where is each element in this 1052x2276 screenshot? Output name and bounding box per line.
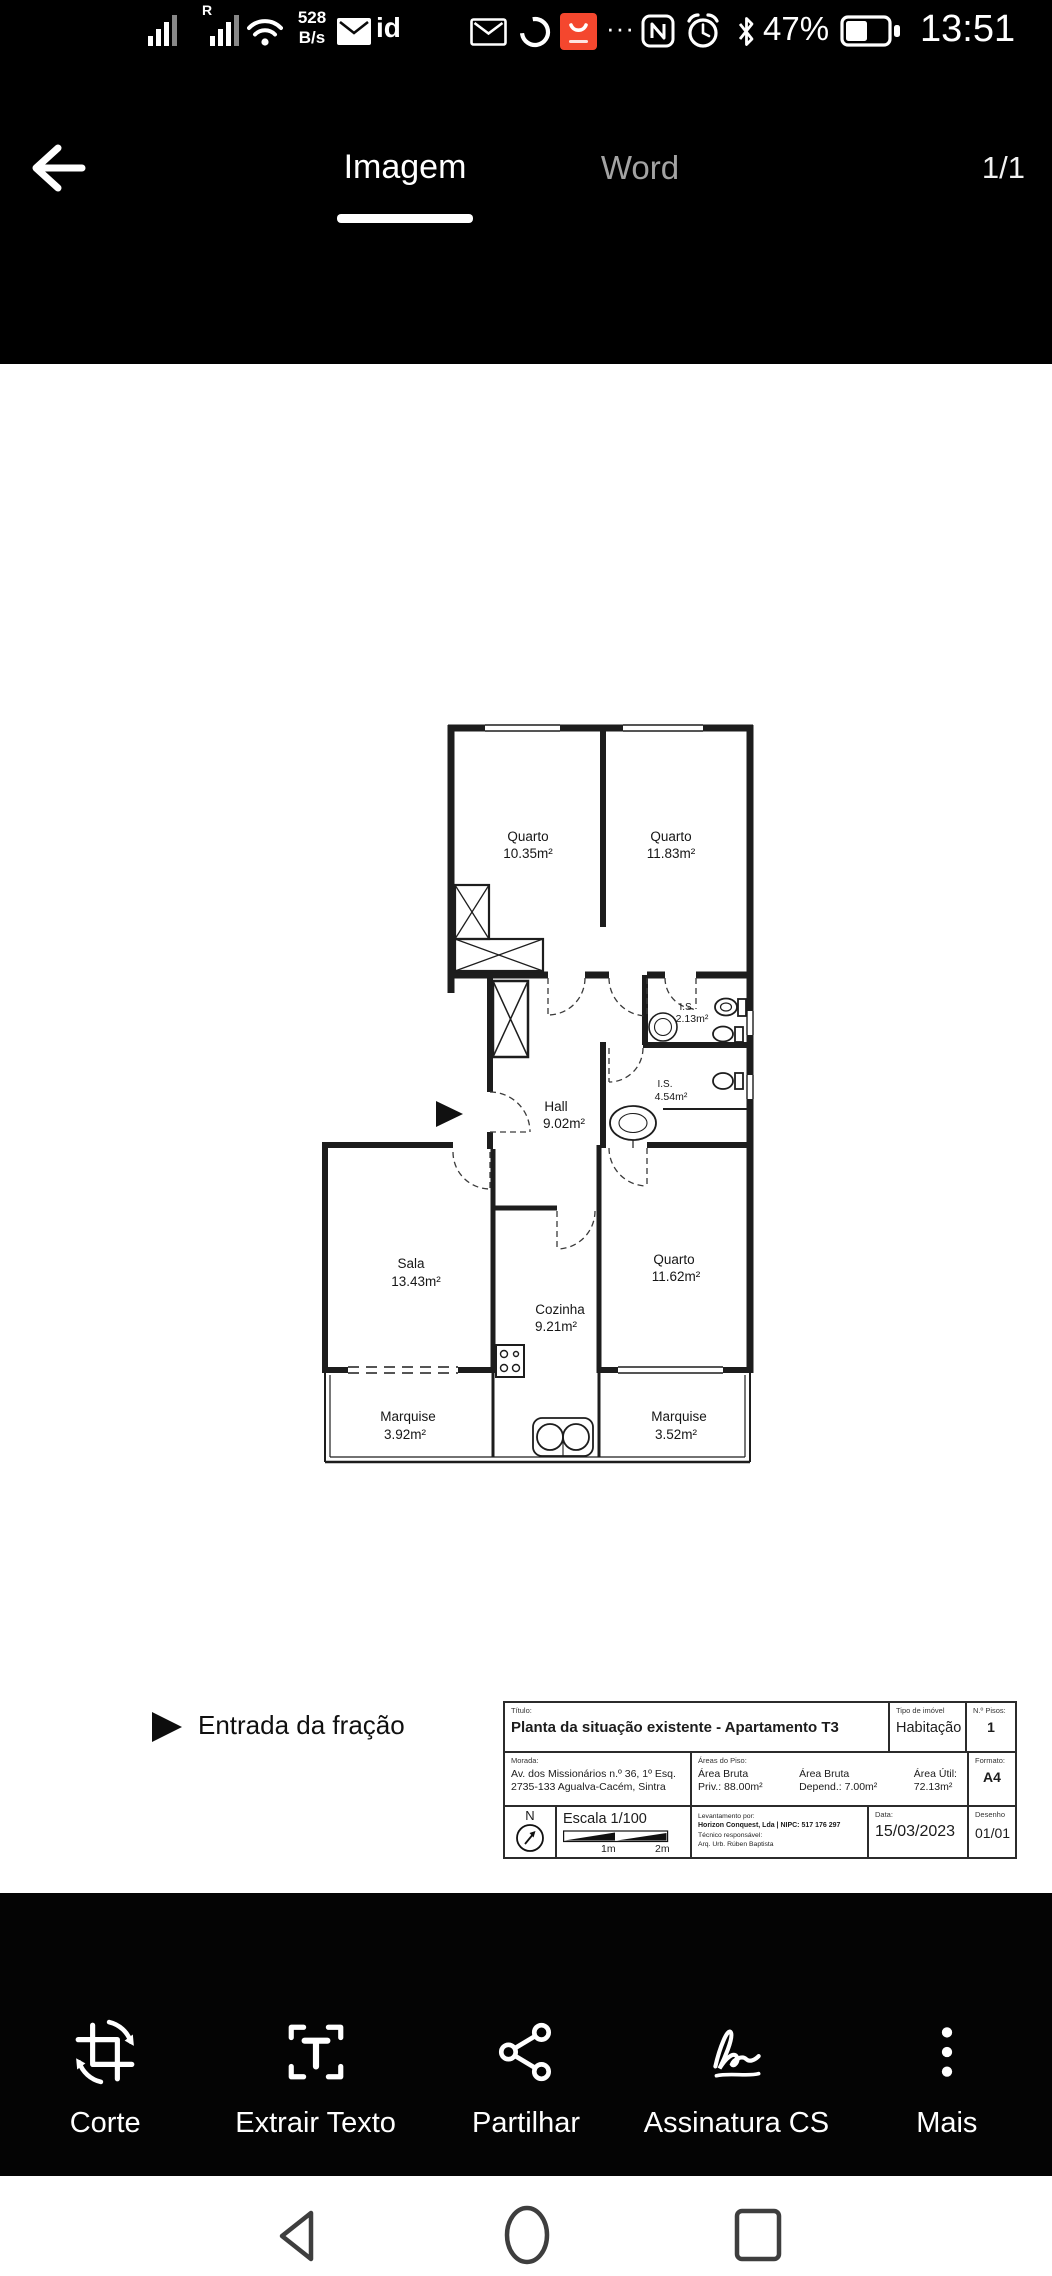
title-block-pisos-cell: N.º Pisos: 1 bbox=[967, 1703, 1015, 1751]
title-block-desenho-cell: Desenho 01/01 bbox=[969, 1807, 1015, 1857]
network-speed: 528 B/s bbox=[286, 8, 338, 48]
room-area: 11.62m² bbox=[652, 1269, 701, 1284]
back-icon[interactable] bbox=[22, 138, 88, 198]
share-label: Partilhar bbox=[472, 2107, 580, 2140]
signature-icon bbox=[703, 2019, 769, 2085]
crop-button[interactable]: Corte bbox=[0, 1893, 210, 2176]
signature-label: Assinatura CS bbox=[644, 2107, 829, 2140]
entrance-legend-label: Entrada da fração bbox=[198, 1710, 405, 1741]
wifi-icon bbox=[247, 15, 283, 46]
escala-value: Escala 1/100 bbox=[563, 1811, 684, 1827]
room-area: 9.02m² bbox=[543, 1116, 586, 1131]
crop-label: Corte bbox=[70, 2107, 141, 2140]
morada-line2: 2735-133 Agualva-Cacém, Sintra bbox=[511, 1781, 684, 1794]
sync-ring-icon bbox=[517, 14, 553, 50]
floor-plan-room-labels: Quarto 10.35m² Quarto 11.83m² I.S. 2.13m… bbox=[380, 829, 709, 1442]
title-block-morada-cell: Morada: Av. dos Missionários n.º 36, 1º … bbox=[505, 1753, 692, 1805]
aliexpress-app-icon bbox=[560, 13, 597, 50]
android-navigation-bar bbox=[0, 2176, 1052, 2276]
pisos-label: N.º Pisos: bbox=[973, 1706, 1009, 1715]
room-label: I.S. bbox=[679, 1002, 694, 1013]
scale-2m-label: 2m bbox=[655, 1843, 670, 1855]
levantamento-label: Levantamento por: bbox=[698, 1812, 861, 1821]
room-label: Marquise bbox=[380, 1409, 436, 1424]
extract-text-button[interactable]: Extrair Texto bbox=[210, 1893, 420, 2176]
room-label: Quarto bbox=[507, 829, 548, 844]
status-bar: R 528 B/s id ··· bbox=[0, 0, 1052, 62]
plan-entrance-arrow-icon bbox=[436, 1101, 463, 1127]
network-speed-unit: B/s bbox=[286, 28, 338, 48]
extract-text-label: Extrair Texto bbox=[235, 2107, 396, 2140]
title-block-escala-cell: Escala 1/100 1m 2m bbox=[557, 1807, 692, 1857]
tipo-imovel-value: Habitação bbox=[896, 1720, 959, 1736]
levantamento-value: Horizon Conquest, Lda | NIPC: 517 176 29… bbox=[698, 1821, 861, 1831]
nav-back-icon[interactable] bbox=[273, 2208, 321, 2264]
alarm-clock-icon bbox=[684, 12, 722, 50]
areas-label: Áreas do Piso: bbox=[698, 1756, 961, 1765]
room-area: 4.54m² bbox=[655, 1091, 688, 1103]
room-area: 2.13m² bbox=[676, 1013, 709, 1025]
title-block-formato-cell: Formato: A4 bbox=[969, 1753, 1015, 1805]
scale-bar: 1m 2m bbox=[563, 1830, 675, 1855]
nav-recents-icon[interactable] bbox=[734, 2208, 782, 2262]
title-block: Título: Planta da situação existente - A… bbox=[503, 1701, 1017, 1859]
room-area: 11.83m² bbox=[647, 846, 696, 861]
mail-outline-icon bbox=[470, 18, 507, 46]
desenho-value: 01/01 bbox=[975, 1825, 1009, 1841]
compass-icon bbox=[514, 1822, 546, 1854]
share-button[interactable]: Partilhar bbox=[421, 1893, 631, 2176]
data-label: Data: bbox=[875, 1810, 961, 1819]
floor-plan: Quarto 10.35m² Quarto 11.83m² I.S. 2.13m… bbox=[313, 715, 758, 1470]
clock-time: 13:51 bbox=[920, 8, 1015, 51]
title-block-north-cell: N bbox=[505, 1807, 557, 1857]
room-label: Marquise bbox=[651, 1409, 707, 1424]
page-indicator: 1/1 bbox=[945, 150, 1025, 186]
pisos-value: 1 bbox=[973, 1719, 1009, 1735]
tecnico-value: Arq. Urb. Rúben Baptista bbox=[698, 1840, 861, 1849]
desenho-label: Desenho bbox=[975, 1810, 1009, 1819]
area-bruta-priv: Área Bruta Priv.: 88.00m² bbox=[698, 1768, 763, 1794]
nfc-icon bbox=[641, 14, 675, 48]
more-label: Mais bbox=[916, 2107, 977, 2140]
area-bruta-dep: Área Bruta Depend.: 7.00m² bbox=[799, 1768, 877, 1794]
room-label: Cozinha bbox=[535, 1302, 585, 1317]
tab-imagem[interactable]: Imagem bbox=[330, 148, 480, 187]
room-label: Quarto bbox=[650, 829, 691, 844]
north-label: N bbox=[525, 1809, 534, 1822]
room-area: 9.21m² bbox=[535, 1319, 578, 1334]
mail-icon bbox=[337, 18, 371, 45]
nav-home-icon[interactable] bbox=[502, 2204, 552, 2266]
entrance-arrow-icon bbox=[152, 1712, 184, 1742]
phone-screen: R 528 B/s id ··· bbox=[0, 0, 1052, 2276]
room-label: I.S. bbox=[657, 1079, 672, 1090]
bluetooth-icon bbox=[734, 13, 759, 50]
room-label: Hall bbox=[544, 1099, 567, 1114]
share-icon bbox=[493, 2019, 559, 2085]
more-icon bbox=[914, 2019, 980, 2085]
room-area: 3.52m² bbox=[655, 1427, 698, 1442]
room-area: 3.92m² bbox=[384, 1427, 427, 1442]
title-block-levantamento-cell: Levantamento por: Horizon Conquest, Lda … bbox=[692, 1807, 869, 1857]
more-button[interactable]: Mais bbox=[842, 1893, 1052, 2176]
scale-1m-label: 1m bbox=[601, 1843, 616, 1855]
room-label: Sala bbox=[397, 1256, 425, 1271]
signature-button[interactable]: Assinatura CS bbox=[631, 1893, 841, 2176]
header-bar: Imagem Word 1/1 bbox=[0, 100, 1052, 280]
network-speed-value: 528 bbox=[286, 8, 338, 28]
morada-line1: Av. dos Missionários n.º 36, 1º Esq. bbox=[511, 1768, 684, 1781]
crop-icon bbox=[72, 2019, 138, 2085]
active-tab-underline bbox=[337, 214, 473, 223]
data-value: 15/03/2023 bbox=[875, 1823, 961, 1841]
title-block-titulo-cell: Título: Planta da situação existente - A… bbox=[505, 1703, 890, 1751]
bottom-toolbar: Corte Extrair Texto Partilhar bbox=[0, 1893, 1052, 2176]
title-block-areas-cell: Áreas do Piso: Área Bruta Priv.: 88.00m²… bbox=[692, 1753, 969, 1805]
tecnico-label: Técnico responsável: bbox=[698, 1831, 861, 1840]
area-util: Área Útil: 72.13m² bbox=[914, 1768, 957, 1794]
battery-percent: 47% bbox=[763, 10, 829, 48]
room-label: Quarto bbox=[653, 1252, 694, 1267]
notification-overflow-dots: ··· bbox=[606, 13, 635, 44]
formato-value: A4 bbox=[975, 1769, 1009, 1785]
extract-text-icon bbox=[283, 2019, 349, 2085]
room-area: 13.43m² bbox=[391, 1274, 441, 1289]
titulo-label: Título: bbox=[511, 1706, 882, 1715]
tab-word[interactable]: Word bbox=[575, 149, 705, 187]
room-area: 10.35m² bbox=[503, 846, 553, 861]
signal2-icon bbox=[210, 14, 242, 48]
formato-label: Formato: bbox=[975, 1756, 1009, 1765]
title-block-data-cell: Data: 15/03/2023 bbox=[869, 1807, 969, 1857]
tipo-imovel-label: Tipo de imóvel bbox=[896, 1706, 959, 1715]
document-page[interactable]: Quarto 10.35m² Quarto 11.83m² I.S. 2.13m… bbox=[0, 364, 1052, 1893]
battery-icon bbox=[840, 15, 902, 49]
signal-icon bbox=[148, 14, 180, 48]
morada-label: Morada: bbox=[511, 1756, 684, 1765]
id-app-icon: id bbox=[376, 12, 401, 44]
title-block-tipo-cell: Tipo de imóvel Habitação bbox=[890, 1703, 967, 1751]
drawing-title: Planta da situação existente - Apartamen… bbox=[511, 1719, 882, 1736]
